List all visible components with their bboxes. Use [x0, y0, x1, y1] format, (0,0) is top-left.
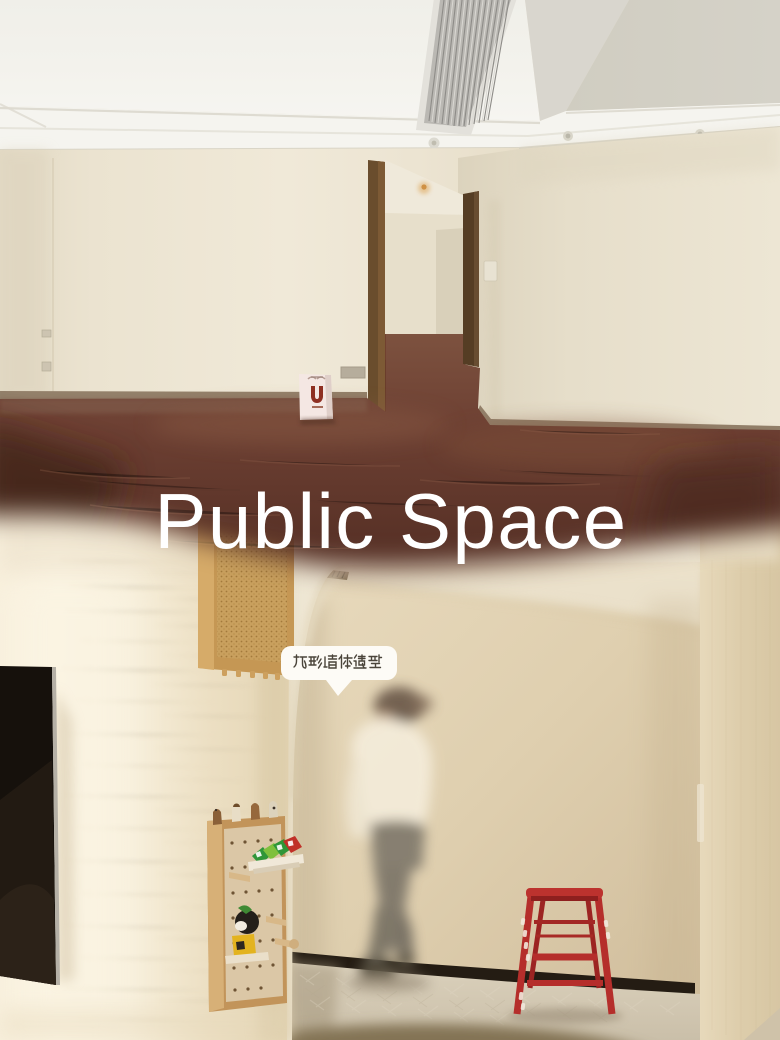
svg-text:Public Space: Public Space	[154, 477, 627, 565]
